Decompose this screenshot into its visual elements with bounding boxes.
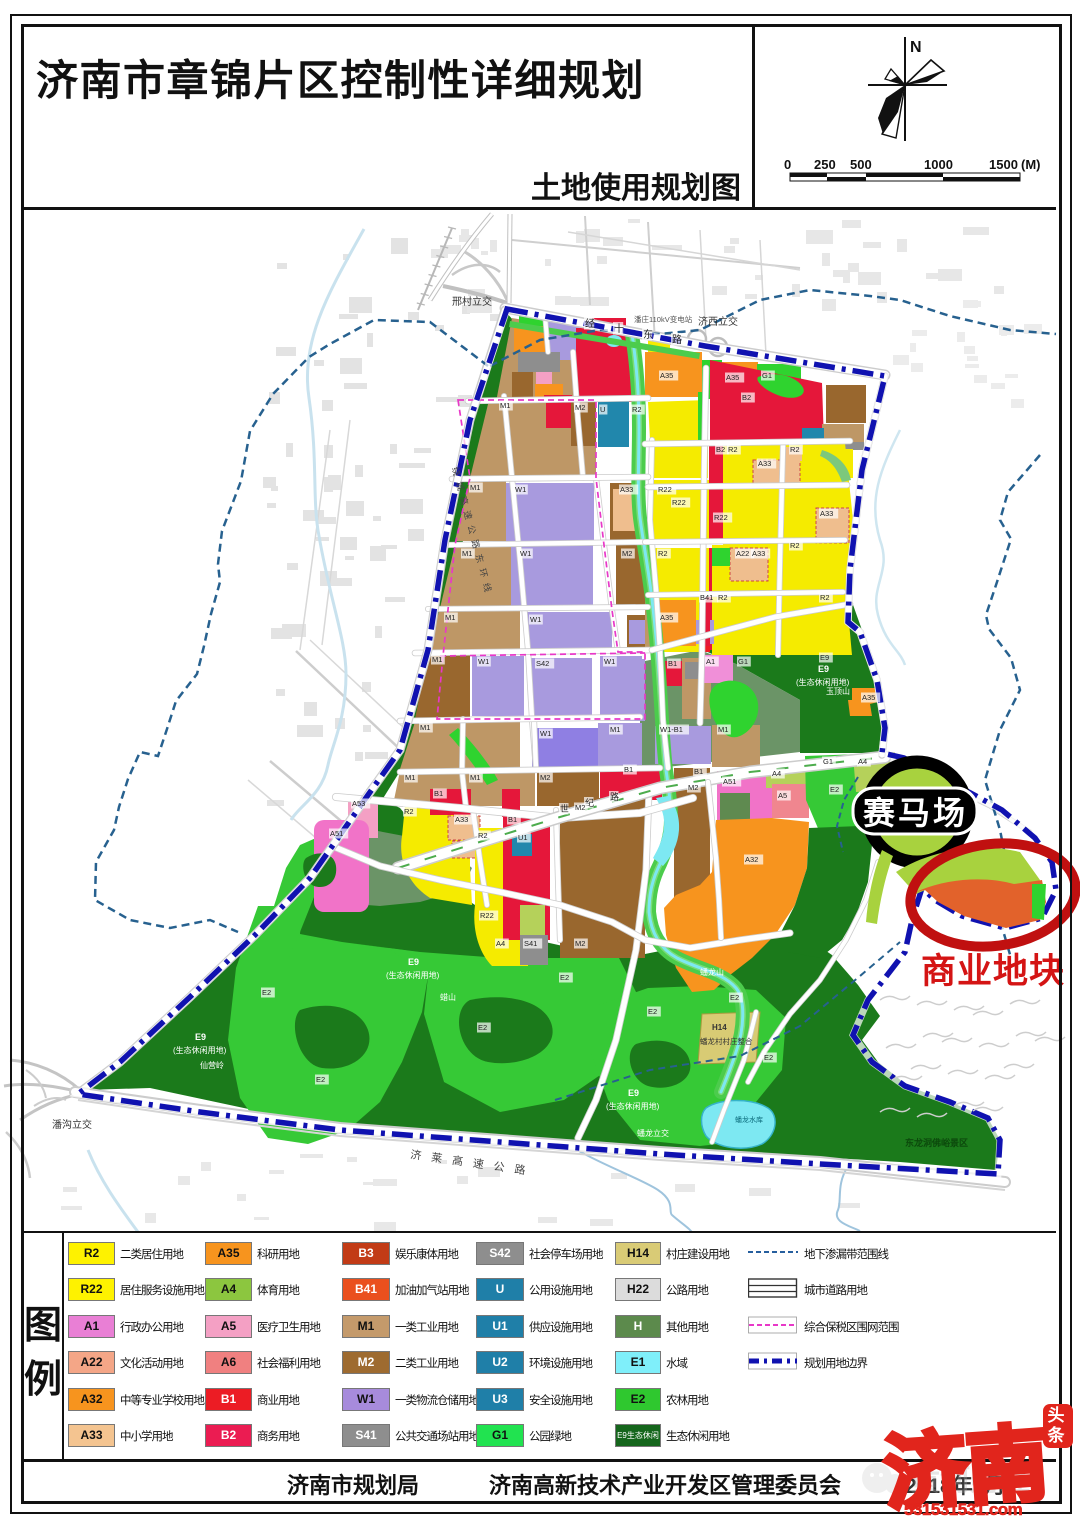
svg-text:N: N xyxy=(910,39,922,56)
svg-text:1000: 1000 xyxy=(924,157,953,172)
svg-text:500: 500 xyxy=(850,157,872,172)
svg-text:1500: 1500 xyxy=(989,157,1018,172)
svg-text:(M): (M) xyxy=(1021,157,1041,172)
svg-text:0: 0 xyxy=(784,157,791,172)
svg-text:250: 250 xyxy=(814,157,836,172)
